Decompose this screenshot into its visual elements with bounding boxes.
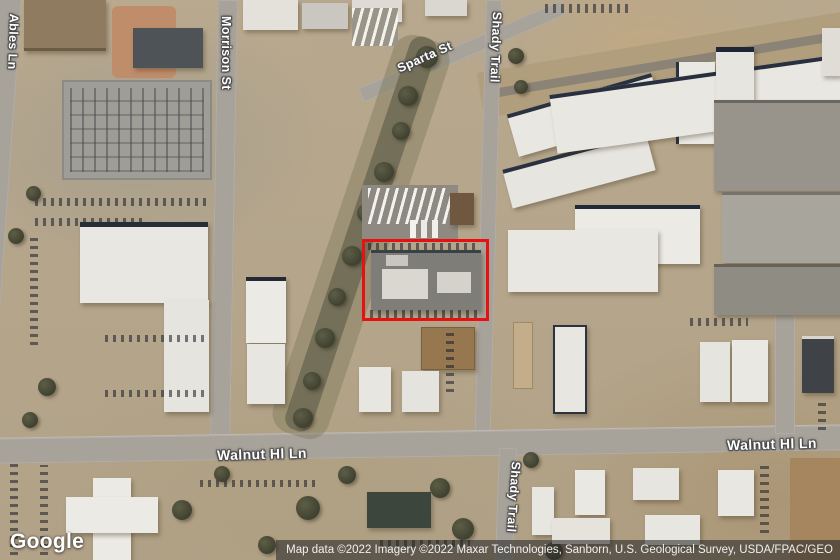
parked-cars bbox=[690, 318, 748, 326]
building bbox=[247, 344, 285, 404]
building bbox=[402, 371, 439, 412]
tan-building bbox=[513, 322, 533, 389]
tree bbox=[303, 372, 321, 390]
building bbox=[718, 470, 754, 516]
tree bbox=[398, 86, 418, 106]
building bbox=[243, 0, 298, 30]
building bbox=[450, 193, 474, 225]
building bbox=[508, 230, 658, 292]
tree bbox=[392, 122, 410, 140]
truck bbox=[432, 220, 438, 238]
building bbox=[425, 0, 467, 16]
tree bbox=[338, 466, 356, 484]
building bbox=[633, 468, 679, 500]
google-logo[interactable]: Google bbox=[10, 530, 84, 554]
tree bbox=[172, 500, 192, 520]
tree bbox=[258, 536, 276, 554]
tree bbox=[315, 328, 335, 348]
substation-equipment bbox=[70, 88, 204, 172]
tree bbox=[328, 288, 346, 306]
parked-cars bbox=[446, 332, 454, 392]
building bbox=[367, 492, 431, 528]
property-highlight-rectangle bbox=[362, 239, 489, 321]
parked-cars bbox=[818, 398, 826, 430]
parked-cars bbox=[105, 390, 205, 397]
road-right-side-drive bbox=[775, 312, 795, 434]
tree bbox=[296, 496, 320, 520]
tree bbox=[523, 452, 539, 468]
truck bbox=[421, 220, 427, 238]
building bbox=[716, 47, 754, 100]
building bbox=[66, 497, 158, 533]
parked-cars bbox=[35, 198, 210, 206]
building bbox=[359, 367, 391, 412]
tree bbox=[430, 478, 450, 498]
building bbox=[732, 340, 768, 402]
road-label-morrison-st: Morrison St bbox=[219, 16, 233, 90]
tree bbox=[514, 80, 528, 94]
parked-cars bbox=[545, 4, 630, 13]
parked-cars bbox=[30, 235, 38, 345]
tree bbox=[342, 246, 362, 266]
building bbox=[802, 336, 834, 393]
road-label-walnut-hl-ln-right: Walnut Hl Ln bbox=[727, 435, 817, 453]
map-attribution: Map data ©2022 Imagery ©2022 Maxar Techn… bbox=[276, 540, 840, 560]
building bbox=[24, 0, 106, 51]
building bbox=[575, 470, 605, 515]
trailer-lot bbox=[352, 8, 398, 46]
building bbox=[246, 277, 286, 343]
road-label-ables-ln: Ables Ln bbox=[5, 14, 21, 70]
tree bbox=[38, 378, 56, 396]
parked-cars bbox=[760, 465, 769, 533]
building bbox=[302, 3, 348, 29]
tree bbox=[293, 408, 313, 428]
road-label-walnut-hl-ln-left: Walnut Hl Ln bbox=[217, 445, 307, 463]
road-label-shady-trail-top: Shady Trail bbox=[488, 12, 504, 84]
tree bbox=[214, 466, 230, 482]
truck bbox=[410, 220, 416, 238]
tree bbox=[22, 412, 38, 428]
building bbox=[700, 342, 730, 402]
parked-cars bbox=[105, 335, 205, 342]
building bbox=[822, 28, 840, 76]
tree bbox=[8, 228, 24, 244]
tree bbox=[452, 518, 474, 540]
building bbox=[714, 264, 840, 315]
tree bbox=[26, 186, 41, 201]
building bbox=[553, 325, 587, 414]
building bbox=[722, 192, 840, 263]
attribution-text: Map data ©2022 Imagery ©2022 Maxar Techn… bbox=[286, 544, 833, 556]
building bbox=[714, 100, 840, 191]
trailer-rows bbox=[368, 188, 450, 224]
satellite-map-canvas[interactable]: Ables Ln Morrison St Sparta St Shady Tra… bbox=[0, 0, 840, 560]
building bbox=[80, 222, 208, 303]
building bbox=[133, 28, 203, 68]
tree bbox=[508, 48, 524, 64]
building bbox=[532, 487, 554, 535]
tree bbox=[374, 162, 394, 182]
road-walnut-hl-ln bbox=[0, 424, 840, 464]
